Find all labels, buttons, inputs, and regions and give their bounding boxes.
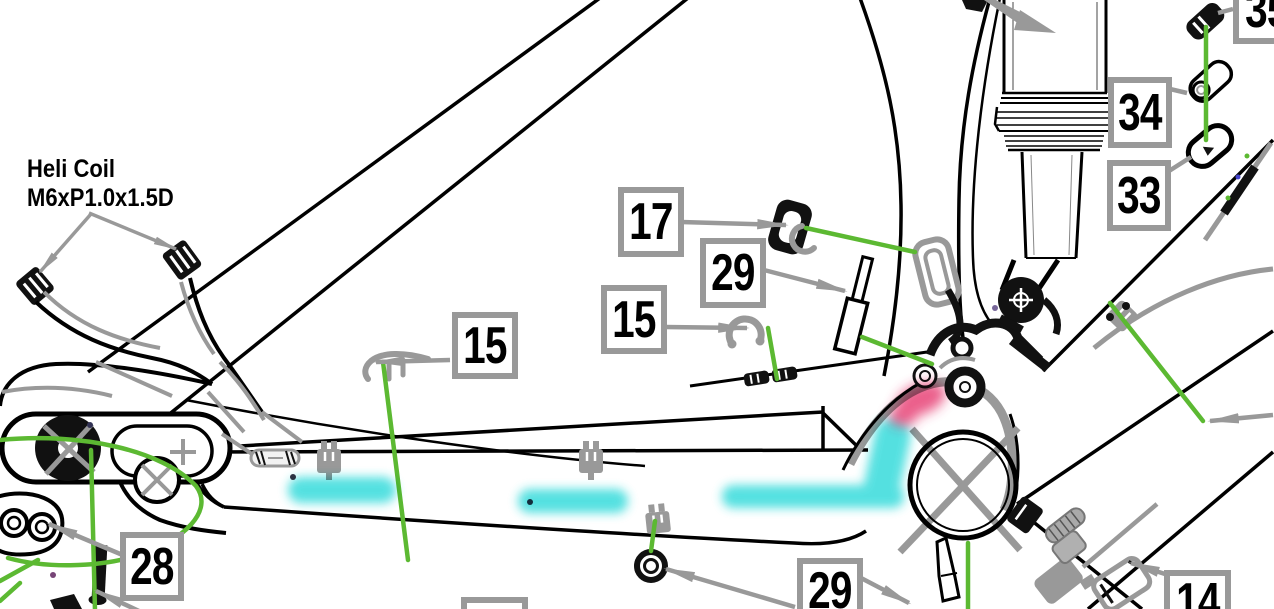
tube-clip-part-15 [365,354,428,379]
routing-line [1110,303,1203,421]
frame-tubes [88,0,1273,609]
part-callout-28: 28 [120,532,184,601]
part-callout-15-mid: 15 [601,285,667,354]
routing-line [0,560,38,581]
leader-29-bottom [861,578,909,603]
eyelet-part-34 [1186,57,1236,106]
heli-coil-line1: Heli Coil [27,155,174,184]
grommet-ring-part [637,552,665,580]
cable-clamp-bolts [743,366,798,387]
part-callout-34: 34 [1108,77,1172,148]
connector-33 [1169,157,1191,171]
leader-grommet [666,569,795,607]
leader-28 [49,524,125,556]
leader-15-left [376,360,450,362]
routing-line [806,228,915,252]
routing-line [383,362,408,560]
cyan-highlight-bar [288,477,396,503]
cyan-highlight-bar [518,489,628,513]
leader-17 [681,222,786,225]
connector-34 [1170,89,1187,93]
bushing-part-33 [1183,120,1238,172]
leader-right-edge [1210,415,1273,421]
cable-clip-a [317,441,341,480]
partial-callout-box [461,597,528,609]
cable-clip-b [579,441,603,480]
top-tube-lower-line [152,0,688,428]
seatstay-brace [690,351,934,386]
routing-line [0,583,20,601]
cable-clip-c [644,503,671,534]
swingarm-brace-joint [823,413,860,449]
bottom-bracket [900,428,1020,552]
c-clip-part-15 [728,319,765,349]
part-callout-29-top: 29 [700,238,766,308]
heli-coil-line2: M6xP1.0x1.5D [27,184,174,213]
swingarm-brace-upper [240,412,823,446]
chain-device-part-29 [937,538,959,601]
seat-tube-left-line [860,0,901,376]
leader-29-top [764,270,845,291]
part-callout-35: 35 [1233,0,1274,44]
part-callout-29-bottom: 29 [797,558,863,609]
rear-shock [948,0,1113,342]
dropout-hardware [1006,495,1153,609]
part-callout-14: 14 [1164,570,1231,609]
part-callout-33: 33 [1107,160,1171,231]
part-callout-15-left: 15 [452,312,518,379]
heli-coil-annotation: Heli Coil M6xP1.0x1.5D [27,155,174,213]
bike-frame-parts-diagram: Heli Coil M6xP1.0x1.5D 17 29 15 15 34 33… [0,0,1274,609]
leader-heli-right [89,213,176,249]
part-callout-17: 17 [618,187,684,257]
leader-heli-left [40,214,91,272]
axle-part [251,450,299,466]
connector-battery [1083,504,1157,567]
leader-15-mid [665,327,747,328]
